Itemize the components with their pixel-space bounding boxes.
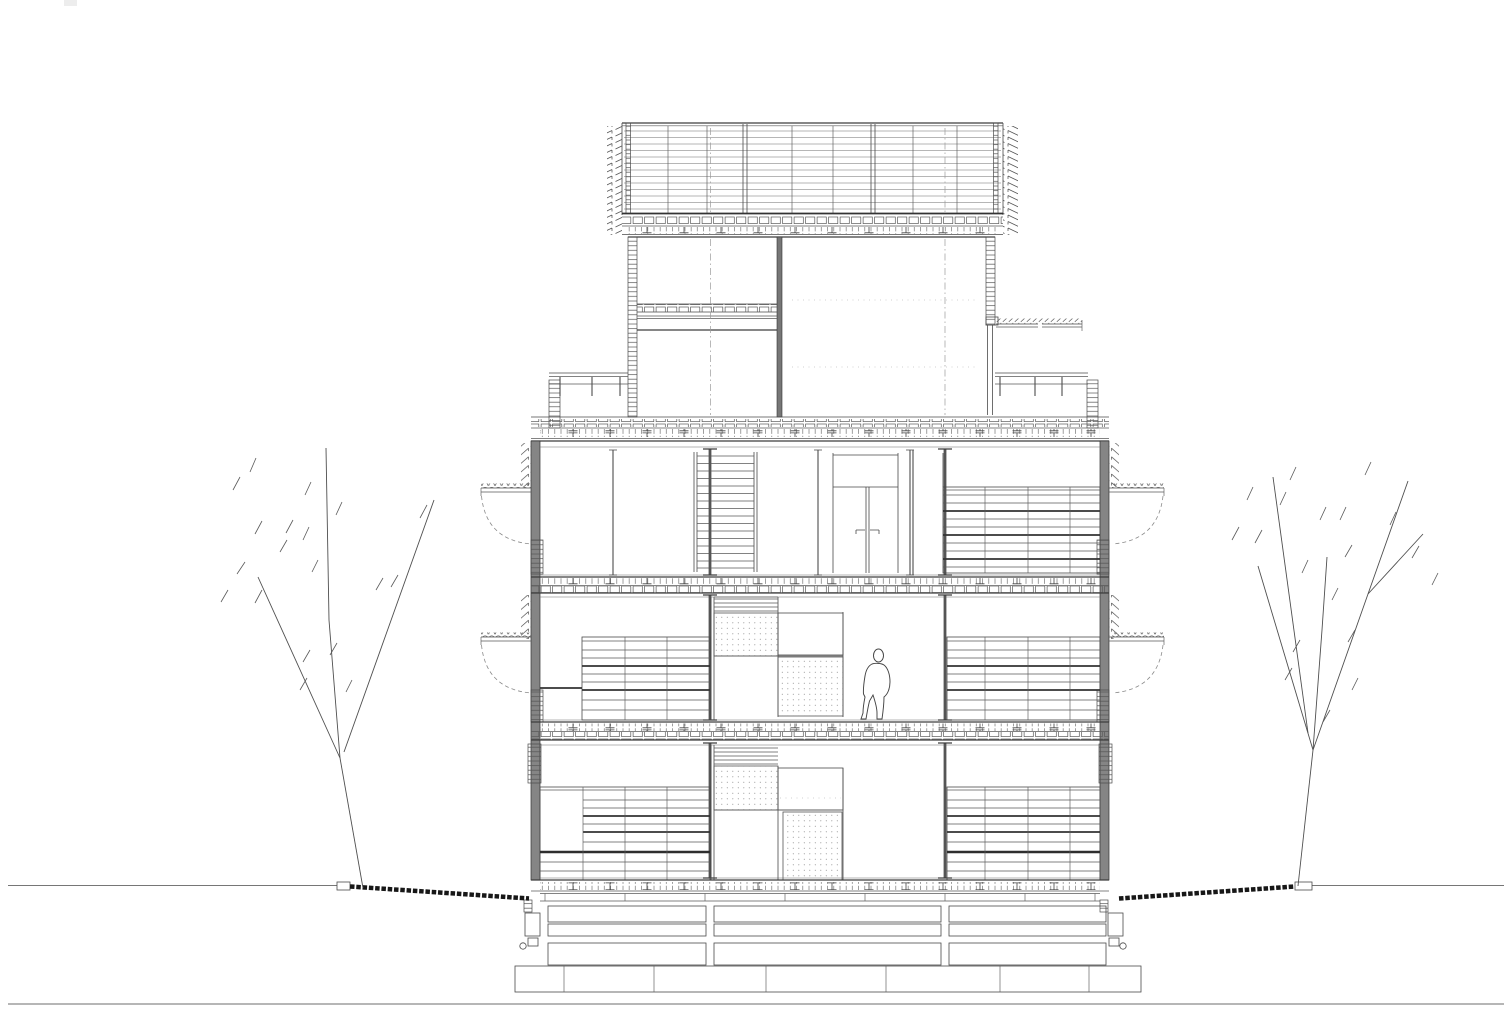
shelf-grid-floor1-right bbox=[947, 787, 1100, 880]
section-drawing: Building cross-section drawing Black-and… bbox=[0, 0, 1512, 1032]
canopy-fins-left bbox=[607, 126, 622, 235]
stippled-panel bbox=[783, 812, 842, 880]
shelf-grid-floor2-right bbox=[947, 637, 1100, 720]
door-handles bbox=[856, 530, 879, 534]
awning-left-floor2 bbox=[481, 633, 531, 694]
center-panels-floor1 bbox=[711, 745, 843, 880]
stippled-panel bbox=[714, 766, 778, 810]
roof-canopy bbox=[607, 123, 1018, 235]
floor-band-1 bbox=[531, 722, 1109, 740]
drain-circle-right bbox=[1120, 943, 1126, 949]
penthouse-window bbox=[637, 304, 777, 330]
stippled-panel bbox=[714, 613, 778, 656]
penthouse-wall-left bbox=[628, 237, 637, 417]
canopy-posts bbox=[626, 123, 998, 214]
shelf-grid-floor3-right bbox=[913, 450, 1100, 575]
canopy-fins-right bbox=[1003, 126, 1018, 235]
canopy-centerlines bbox=[711, 128, 946, 213]
plinth-tier-1 bbox=[548, 906, 1106, 936]
edge-pier-left bbox=[525, 913, 540, 936]
penthouse-wall-center bbox=[777, 237, 782, 417]
drain-circle-left bbox=[520, 943, 526, 949]
foundation-plinth bbox=[515, 906, 1141, 992]
shelf-grid-floor2-left bbox=[540, 637, 710, 720]
human-figure bbox=[861, 649, 890, 719]
plinth-tier-2 bbox=[548, 943, 1106, 965]
floor-1 bbox=[540, 743, 1100, 880]
hatched-slope-right bbox=[1119, 887, 1295, 899]
stippled-panel bbox=[778, 657, 843, 716]
print-artifact bbox=[64, 0, 77, 6]
penthouse-level bbox=[549, 237, 1098, 428]
penthouse-wall-right-lower bbox=[988, 325, 993, 415]
roof-deck-band bbox=[531, 417, 1109, 441]
planter-left bbox=[337, 882, 350, 890]
shelf-grid-floor1-left bbox=[540, 787, 710, 880]
hatched-slope-left bbox=[350, 887, 529, 899]
awning-right-floor3 bbox=[1109, 484, 1164, 545]
architectural-section-canvas: Building cross-section drawing Black-and… bbox=[0, 0, 1512, 1032]
twigs bbox=[221, 458, 427, 692]
penthouse-faint-lines bbox=[792, 300, 978, 367]
tree-right bbox=[1232, 462, 1438, 886]
floor-2 bbox=[540, 595, 1100, 720]
edge-pier-right bbox=[1108, 913, 1123, 936]
awning-left-floor3 bbox=[481, 484, 531, 545]
awning-right-floor2 bbox=[1109, 633, 1164, 694]
penthouse-awning-right bbox=[986, 317, 1082, 331]
planter-right bbox=[1295, 882, 1312, 890]
canopy-post-ladder-right bbox=[994, 123, 999, 214]
stair bbox=[694, 452, 757, 572]
twigs bbox=[1232, 462, 1438, 722]
canopy-post-ladder-left bbox=[626, 123, 631, 214]
penthouse-centerlines bbox=[711, 239, 946, 415]
tree-left bbox=[221, 448, 434, 888]
wall-right bbox=[1100, 441, 1109, 880]
floor-band-2 bbox=[531, 577, 1109, 593]
center-panels-floor2 bbox=[711, 597, 843, 720]
penthouse-wall-right-upper bbox=[986, 237, 995, 325]
plinth-tier-3 bbox=[515, 966, 1141, 992]
canopy-deck bbox=[622, 214, 1003, 235]
floor-3 bbox=[540, 447, 1100, 575]
ground-slab-band bbox=[524, 880, 1109, 912]
wall-left bbox=[531, 441, 540, 880]
double-door bbox=[833, 453, 898, 573]
